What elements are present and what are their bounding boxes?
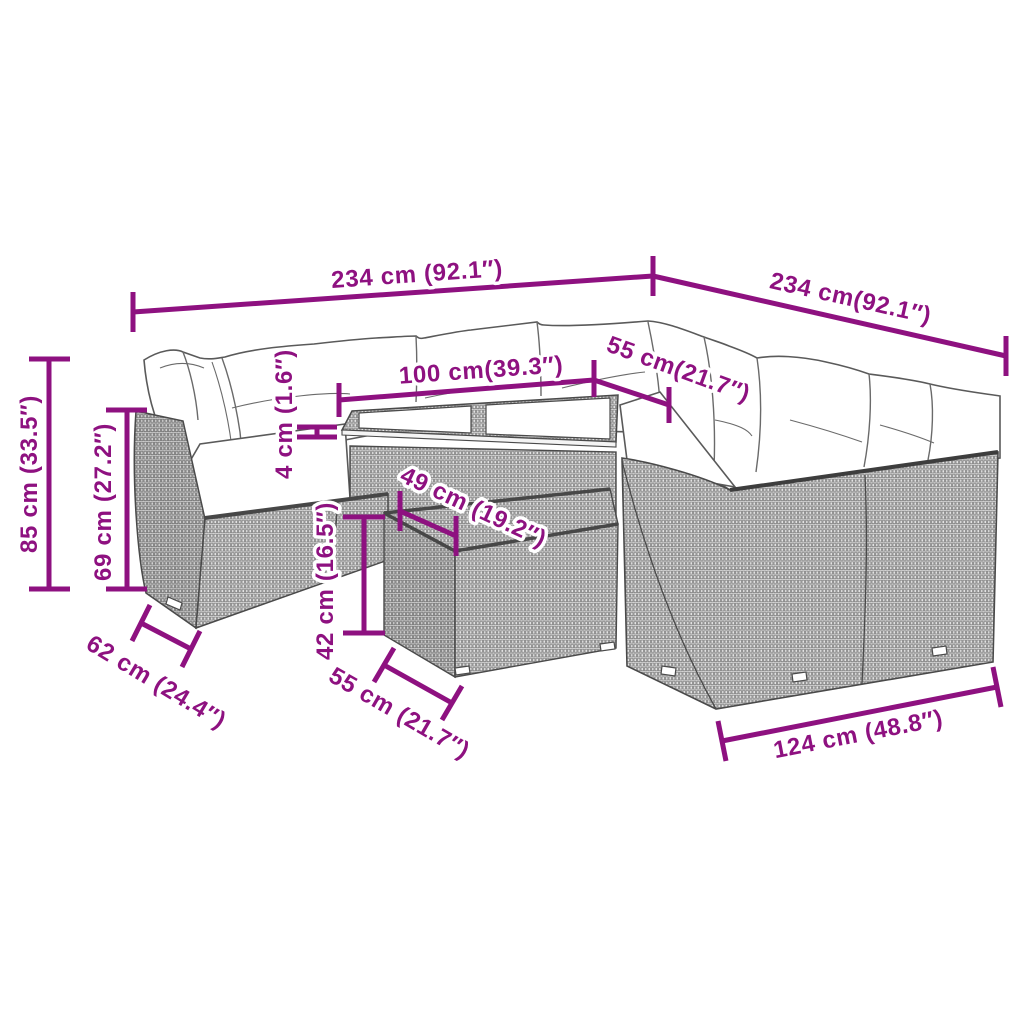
svg-text:69 cm (27.2″): 69 cm (27.2″) [90, 423, 117, 581]
svg-text:4 cm (1.6″): 4 cm (1.6″) [271, 349, 298, 479]
svg-text:42 cm (16.5″): 42 cm (16.5″) [312, 502, 339, 660]
svg-text:85 cm (33.5″): 85 cm (33.5″) [16, 395, 43, 553]
